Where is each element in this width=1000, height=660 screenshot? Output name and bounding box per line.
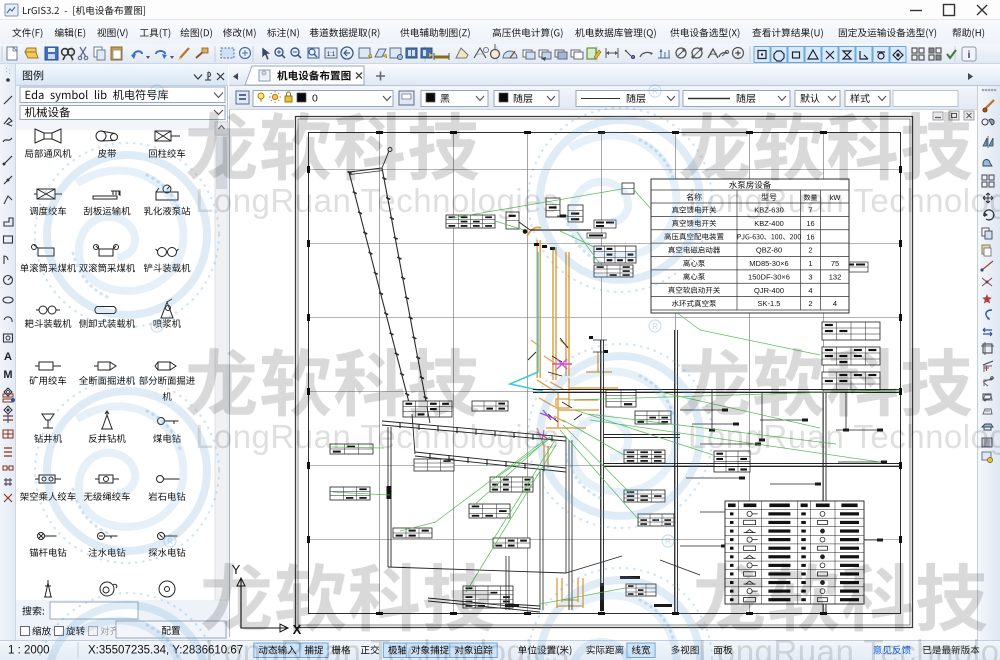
svg-text:A: A — [4, 351, 12, 363]
svg-text:QJR-400: QJR-400 — [754, 286, 784, 295]
svg-text:4: 4 — [833, 299, 837, 308]
svg-text:2: 2 — [808, 299, 812, 308]
svg-text:R: R — [652, 322, 658, 331]
svg-text:75: 75 — [831, 259, 839, 268]
svg-text:i: i — [968, 50, 971, 61]
svg-text:R: R — [154, 87, 160, 96]
svg-text:SK-1.5: SK-1.5 — [758, 299, 781, 308]
svg-text:4: 4 — [808, 286, 812, 295]
svg-text:LongRuan Technologies: LongRuan Technologies — [688, 182, 1000, 219]
svg-text:0: 0 — [312, 93, 318, 105]
svg-text:MD85-30×6: MD85-30×6 — [749, 259, 788, 268]
svg-text:QBZ-80: QBZ-80 — [756, 246, 782, 255]
svg-text:LongRuan Technologies: LongRuan Technologies — [205, 633, 569, 660]
svg-text:2: 2 — [808, 246, 812, 255]
svg-text:1:1: 1:1 — [327, 52, 336, 58]
svg-text:16: 16 — [806, 219, 814, 228]
svg-text:3: 3 — [808, 272, 812, 281]
svg-text:150DF-30×6: 150DF-30×6 — [748, 272, 790, 281]
svg-text:KBZ-400: KBZ-400 — [754, 219, 784, 228]
svg-text:LongRuan Technologies: LongRuan Technologies — [195, 418, 559, 455]
svg-text:132: 132 — [829, 272, 842, 281]
svg-text:1 : 2000: 1 : 2000 — [8, 645, 50, 657]
svg-text:1: 1 — [808, 259, 812, 268]
svg-text:LongRuan Technologies: LongRuan Technologies — [195, 182, 559, 219]
svg-text:R: R — [665, 537, 671, 546]
svg-text:R: R — [652, 87, 658, 96]
svg-text:LongRuan Technologies: LongRuan Technologies — [698, 633, 1000, 660]
svg-text:LongRuan Technologies: LongRuan Technologies — [688, 418, 1000, 455]
svg-text:M: M — [3, 369, 12, 381]
svg-text:R: R — [154, 322, 160, 331]
svg-text:R: R — [167, 537, 173, 546]
svg-text:16: 16 — [806, 232, 814, 241]
